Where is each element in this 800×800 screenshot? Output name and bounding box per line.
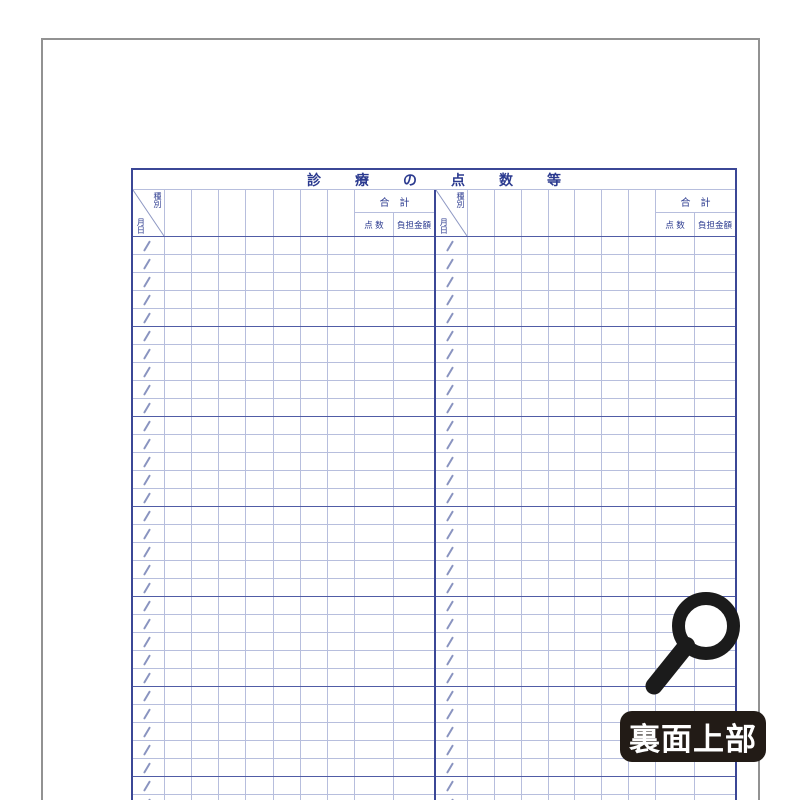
- date-cell: [436, 705, 468, 722]
- entry-cell: [575, 597, 602, 614]
- date-slash-mark: [446, 456, 454, 467]
- date-slash-mark: [446, 564, 454, 575]
- date-cell: [436, 561, 468, 578]
- copay-cell: [695, 363, 735, 380]
- entry-cell: [165, 543, 192, 560]
- entry-cell: [219, 687, 246, 704]
- entry-cell: [629, 489, 656, 506]
- entry-cell: [301, 723, 328, 740]
- entry-cell: [192, 399, 219, 416]
- copay-cell: [695, 525, 735, 542]
- points-header: 点 数: [355, 213, 394, 236]
- entry-cell: [522, 417, 549, 434]
- entry-cell: [219, 777, 246, 794]
- date-cell: [436, 345, 468, 362]
- entry-cell: [575, 381, 602, 398]
- copay-cell: [695, 309, 735, 326]
- entry-cell: [495, 651, 522, 668]
- table-row: [436, 561, 735, 579]
- date-cell: [436, 687, 468, 704]
- entry-cell: [468, 237, 495, 254]
- entry-cell: [328, 453, 355, 470]
- entry-cell: [274, 669, 301, 686]
- entry-cell: [219, 399, 246, 416]
- date-cell: [436, 489, 468, 506]
- entry-cell: [602, 525, 629, 542]
- entry-cell: [165, 471, 192, 488]
- date-slash-mark: [143, 384, 151, 395]
- table-row: [436, 453, 735, 471]
- entry-cell: [602, 471, 629, 488]
- table-row: [436, 543, 735, 561]
- date-slash-mark: [446, 438, 454, 449]
- entry-cell: [301, 399, 328, 416]
- entry-cell: [246, 291, 273, 308]
- table-row: [133, 327, 434, 345]
- copay-cell: [695, 273, 735, 290]
- date-slash-mark: [143, 330, 151, 341]
- blank-header-column: [192, 190, 219, 236]
- entry-cell: [549, 723, 576, 740]
- date-slash-mark: [143, 402, 151, 413]
- entry-cell: [246, 381, 273, 398]
- entry-cell: [468, 615, 495, 632]
- table-row: [133, 291, 434, 309]
- date-cell: [133, 345, 165, 362]
- copay-cell: [394, 291, 434, 308]
- points-cell: [355, 525, 394, 542]
- copay-cell: [394, 651, 434, 668]
- entry-cell: [219, 669, 246, 686]
- points-cell: [355, 255, 394, 272]
- copay-cell: [394, 417, 434, 434]
- table-row: [436, 255, 735, 273]
- points-cell: [355, 723, 394, 740]
- table-row: [133, 579, 434, 597]
- entry-cell: [192, 435, 219, 452]
- entry-cell: [602, 327, 629, 344]
- entry-cell: [495, 255, 522, 272]
- date-cell: [133, 543, 165, 560]
- entry-cell: [468, 795, 495, 800]
- date-slash-mark: [143, 582, 151, 593]
- table-row: [133, 687, 434, 705]
- entry-cell: [246, 543, 273, 560]
- points-cell: [355, 237, 394, 254]
- points-cell: [355, 507, 394, 524]
- entry-cell: [575, 579, 602, 596]
- date-slash-mark: [446, 618, 454, 629]
- copay-cell: [394, 561, 434, 578]
- date-type-corner-cell: 種別月日: [436, 190, 468, 236]
- entry-cell: [602, 381, 629, 398]
- entry-cell: [468, 345, 495, 362]
- entry-cell: [495, 525, 522, 542]
- entry-cell: [522, 381, 549, 398]
- entry-cell: [165, 237, 192, 254]
- entry-cell: [629, 237, 656, 254]
- entry-cell: [522, 273, 549, 290]
- copay-cell: [394, 507, 434, 524]
- entry-cell: [192, 687, 219, 704]
- date-slash-mark: [446, 672, 454, 683]
- entry-cell: [328, 687, 355, 704]
- entry-cell: [602, 687, 629, 704]
- entry-cell: [549, 471, 576, 488]
- date-slash-mark: [446, 528, 454, 539]
- entry-cell: [274, 399, 301, 416]
- entry-cell: [629, 327, 656, 344]
- entry-cell: [468, 363, 495, 380]
- entry-cell: [602, 795, 629, 800]
- entry-cell: [575, 525, 602, 542]
- entry-cell: [274, 309, 301, 326]
- table-row: [133, 543, 434, 561]
- copay-cell: [394, 633, 434, 650]
- entry-cell: [549, 363, 576, 380]
- points-cell: [656, 525, 695, 542]
- entry-cell: [549, 309, 576, 326]
- date-slash-mark: [446, 636, 454, 647]
- totals-subrow: 点 数負担金額: [656, 213, 735, 236]
- entry-cell: [468, 525, 495, 542]
- date-cell: [133, 651, 165, 668]
- points-cell: [355, 561, 394, 578]
- entry-cell: [522, 597, 549, 614]
- date-slash-mark: [143, 726, 151, 737]
- entry-cell: [274, 273, 301, 290]
- copay-cell: [695, 471, 735, 488]
- copay-cell: [695, 399, 735, 416]
- date-slash-mark: [446, 312, 454, 323]
- copay-cell: [394, 705, 434, 722]
- entry-cell: [575, 435, 602, 452]
- points-cell: [656, 363, 695, 380]
- points-cell: [355, 705, 394, 722]
- entry-cell: [495, 759, 522, 776]
- entry-cell: [549, 687, 576, 704]
- date-label: 月日: [136, 218, 144, 234]
- entry-cell: [246, 705, 273, 722]
- entry-cell: [192, 777, 219, 794]
- entry-cell: [522, 471, 549, 488]
- entry-cell: [522, 507, 549, 524]
- entry-cell: [575, 345, 602, 362]
- entry-cell: [246, 615, 273, 632]
- entry-cell: [575, 273, 602, 290]
- entry-cell: [575, 453, 602, 470]
- table-row: [133, 489, 434, 507]
- screenshot-canvas: 診 療 の 点 数 等 種別月日合 計点 数負担金額種別月日合 計点 数負担金額…: [0, 0, 800, 800]
- entry-cell: [575, 795, 602, 800]
- date-slash-mark: [446, 240, 454, 251]
- entry-cell: [274, 291, 301, 308]
- entry-cell: [549, 435, 576, 452]
- entry-cell: [549, 561, 576, 578]
- date-cell: [133, 759, 165, 776]
- entry-cell: [246, 723, 273, 740]
- points-cell: [355, 399, 394, 416]
- entry-cell: [495, 489, 522, 506]
- entry-cell: [602, 543, 629, 560]
- entry-cell: [165, 273, 192, 290]
- entry-cell: [165, 759, 192, 776]
- date-cell: [436, 291, 468, 308]
- entry-cell: [246, 273, 273, 290]
- date-cell: [436, 309, 468, 326]
- entry-cell: [246, 345, 273, 362]
- entry-cell: [602, 561, 629, 578]
- copay-cell: [394, 237, 434, 254]
- entry-cell: [192, 291, 219, 308]
- date-slash-mark: [143, 438, 151, 449]
- date-slash-mark: [446, 276, 454, 287]
- entry-cell: [629, 273, 656, 290]
- magnifier-icon: [640, 580, 770, 700]
- entry-cell: [246, 489, 273, 506]
- date-cell: [133, 561, 165, 578]
- date-slash-mark: [143, 708, 151, 719]
- copay-header: 負担金額: [695, 213, 735, 236]
- entry-cell: [328, 327, 355, 344]
- entry-cell: [165, 327, 192, 344]
- entry-cell: [274, 759, 301, 776]
- entry-cell: [165, 417, 192, 434]
- entry-cell: [468, 741, 495, 758]
- entry-cell: [301, 669, 328, 686]
- entry-cell: [246, 255, 273, 272]
- entry-cell: [629, 291, 656, 308]
- entry-cell: [549, 453, 576, 470]
- entry-cell: [495, 381, 522, 398]
- entry-cell: [328, 255, 355, 272]
- points-cell: [656, 345, 695, 362]
- entry-cell: [246, 795, 273, 800]
- entry-cell: [192, 561, 219, 578]
- entry-cell: [522, 579, 549, 596]
- date-cell: [133, 633, 165, 650]
- entry-cell: [328, 291, 355, 308]
- entry-cell: [165, 561, 192, 578]
- copay-cell: [394, 669, 434, 686]
- copay-cell: [695, 381, 735, 398]
- entry-cell: [549, 705, 576, 722]
- date-slash-mark: [446, 492, 454, 503]
- entry-cell: [219, 759, 246, 776]
- entry-cell: [495, 435, 522, 452]
- entry-cell: [165, 255, 192, 272]
- table-row: [133, 237, 434, 255]
- date-cell: [436, 669, 468, 686]
- entry-cell: [301, 795, 328, 800]
- table-row: [133, 399, 434, 417]
- points-table: 診 療 の 点 数 等 種別月日合 計点 数負担金額種別月日合 計点 数負担金額: [131, 168, 737, 800]
- entry-cell: [165, 435, 192, 452]
- entry-cell: [468, 381, 495, 398]
- table-row: [133, 381, 434, 399]
- entry-cell: [328, 777, 355, 794]
- date-cell: [436, 777, 468, 794]
- date-cell: [133, 615, 165, 632]
- entry-cell: [165, 795, 192, 800]
- date-slash-mark: [143, 564, 151, 575]
- entry-cell: [575, 705, 602, 722]
- entry-cell: [274, 417, 301, 434]
- half-header: 種別月日合 計点 数負担金額: [436, 190, 735, 237]
- date-slash-mark: [143, 474, 151, 485]
- entry-cell: [219, 741, 246, 758]
- entry-cell: [192, 417, 219, 434]
- points-cell: [656, 399, 695, 416]
- entry-cell: [522, 453, 549, 470]
- points-cell: [355, 453, 394, 470]
- entry-cell: [602, 669, 629, 686]
- entry-cell: [602, 237, 629, 254]
- entry-cell: [274, 795, 301, 800]
- table-row: [133, 651, 434, 669]
- entry-cell: [522, 363, 549, 380]
- entry-cell: [301, 273, 328, 290]
- entry-cell: [495, 363, 522, 380]
- entry-cell: [219, 309, 246, 326]
- entry-cell: [274, 543, 301, 560]
- date-cell: [436, 417, 468, 434]
- entry-cell: [301, 309, 328, 326]
- points-cell: [355, 777, 394, 794]
- points-header: 点 数: [656, 213, 695, 236]
- points-cell: [355, 687, 394, 704]
- date-cell: [133, 381, 165, 398]
- entry-cell: [629, 507, 656, 524]
- entry-cell: [549, 579, 576, 596]
- date-cell: [133, 507, 165, 524]
- points-cell: [355, 795, 394, 800]
- table-row: [133, 255, 434, 273]
- entry-cell: [274, 525, 301, 542]
- entry-cell: [602, 597, 629, 614]
- table-half-left: 種別月日合 計点 数負担金額: [133, 190, 434, 800]
- entry-cell: [602, 363, 629, 380]
- date-cell: [436, 237, 468, 254]
- date-slash-mark: [446, 744, 454, 755]
- date-slash-mark: [446, 384, 454, 395]
- entry-cell: [165, 525, 192, 542]
- zoom-area-badge-label: 裏面上部: [629, 714, 757, 759]
- points-cell: [656, 291, 695, 308]
- entry-cell: [522, 759, 549, 776]
- entry-cell: [274, 489, 301, 506]
- entry-cell: [165, 687, 192, 704]
- entry-cell: [246, 399, 273, 416]
- entry-cell: [301, 543, 328, 560]
- points-cell: [355, 471, 394, 488]
- entry-cell: [575, 507, 602, 524]
- table-row: [133, 597, 434, 615]
- entry-cell: [575, 561, 602, 578]
- entry-cell: [468, 705, 495, 722]
- entry-cell: [575, 669, 602, 686]
- half-header: 種別月日合 計点 数負担金額: [133, 190, 434, 237]
- points-cell: [355, 579, 394, 596]
- copay-cell: [394, 777, 434, 794]
- points-cell: [355, 669, 394, 686]
- points-cell: [355, 741, 394, 758]
- entry-cell: [301, 291, 328, 308]
- table-body: 種別月日合 計点 数負担金額種別月日合 計点 数負担金額: [133, 190, 735, 800]
- table-row: [436, 237, 735, 255]
- entry-cell: [301, 471, 328, 488]
- entry-cell: [192, 669, 219, 686]
- date-slash-mark: [446, 762, 454, 773]
- date-cell: [436, 579, 468, 596]
- date-slash-mark: [446, 726, 454, 737]
- entry-cell: [495, 561, 522, 578]
- entry-cell: [219, 363, 246, 380]
- date-cell: [436, 741, 468, 758]
- entry-cell: [165, 363, 192, 380]
- entry-cell: [602, 633, 629, 650]
- entry-cell: [522, 741, 549, 758]
- entry-cell: [522, 543, 549, 560]
- entry-cell: [274, 579, 301, 596]
- copay-cell: [394, 273, 434, 290]
- entry-cell: [274, 705, 301, 722]
- entry-cell: [328, 507, 355, 524]
- points-cell: [656, 471, 695, 488]
- copay-cell: [394, 255, 434, 272]
- date-slash-mark: [143, 618, 151, 629]
- date-slash-mark: [143, 744, 151, 755]
- blank-header-column: [246, 190, 273, 236]
- entry-cell: [246, 633, 273, 650]
- entry-cell: [192, 255, 219, 272]
- copay-cell: [695, 345, 735, 362]
- entry-cell: [495, 327, 522, 344]
- date-cell: [133, 669, 165, 686]
- date-slash-mark: [446, 654, 454, 665]
- table-row: [133, 345, 434, 363]
- entry-cell: [301, 759, 328, 776]
- date-cell: [436, 471, 468, 488]
- entry-cell: [246, 471, 273, 488]
- entry-cell: [328, 561, 355, 578]
- entry-cell: [165, 633, 192, 650]
- entry-cell: [602, 453, 629, 470]
- date-cell: [133, 327, 165, 344]
- entry-cell: [468, 597, 495, 614]
- entry-cell: [192, 471, 219, 488]
- copay-cell: [695, 255, 735, 272]
- entry-cell: [219, 453, 246, 470]
- entry-cell: [219, 489, 246, 506]
- points-cell: [355, 309, 394, 326]
- entry-cell: [575, 291, 602, 308]
- entry-cell: [192, 381, 219, 398]
- entry-cell: [522, 795, 549, 800]
- date-cell: [133, 525, 165, 542]
- entry-cell: [575, 309, 602, 326]
- entry-cell: [495, 417, 522, 434]
- entry-cell: [219, 723, 246, 740]
- entry-cell: [192, 579, 219, 596]
- table-half-right: 種別月日合 計点 数負担金額: [434, 190, 735, 800]
- entry-cell: [602, 273, 629, 290]
- points-cell: [656, 561, 695, 578]
- points-cell: [355, 417, 394, 434]
- entry-cell: [165, 741, 192, 758]
- entry-cell: [219, 273, 246, 290]
- points-cell: [355, 381, 394, 398]
